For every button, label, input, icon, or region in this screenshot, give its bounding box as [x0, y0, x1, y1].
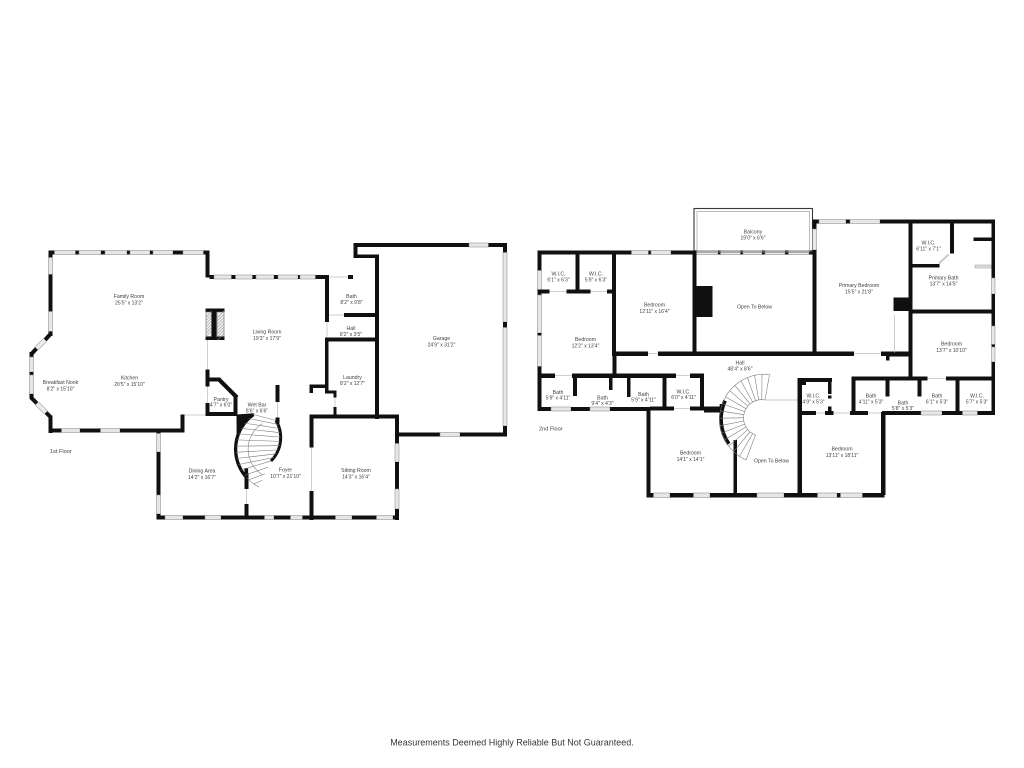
svg-text:4’7" x 6’0": 4’7" x 6’0"	[210, 402, 232, 408]
svg-text:Living Room: Living Room	[253, 330, 282, 336]
svg-text:14’2" x 16’7": 14’2" x 16’7"	[188, 475, 216, 481]
svg-text:9’4" x 4’3": 9’4" x 4’3"	[591, 401, 613, 407]
svg-text:15’5" x 21’8": 15’5" x 21’8"	[845, 289, 873, 295]
svg-text:4’11" x 5’3": 4’11" x 5’3"	[859, 399, 884, 405]
svg-text:14’3" x 16’4": 14’3" x 16’4"	[342, 474, 370, 480]
svg-text:5’7" x 5’3": 5’7" x 5’3"	[966, 399, 988, 405]
svg-text:25’5" x 13’2": 25’5" x 13’2"	[115, 300, 143, 306]
svg-text:6’11" x 7’1": 6’11" x 7’1"	[916, 246, 941, 252]
svg-text:Breakfast Nook: Breakfast Nook	[43, 380, 79, 386]
svg-text:Bedroom: Bedroom	[680, 451, 701, 457]
svg-text:8’2" x 9’8": 8’2" x 9’8"	[340, 300, 362, 306]
svg-text:10’7" x 21’10": 10’7" x 21’10"	[270, 474, 301, 480]
svg-text:Bedroom: Bedroom	[644, 303, 665, 309]
svg-text:13’7" x 14’5": 13’7" x 14’5"	[930, 281, 958, 287]
svg-text:5’9" x 4’11": 5’9" x 4’11"	[546, 395, 571, 401]
svg-text:Bedroom: Bedroom	[941, 342, 962, 348]
svg-text:4’9" x 5’3": 4’9" x 5’3"	[802, 399, 824, 405]
svg-text:Open To Below: Open To Below	[754, 459, 789, 465]
svg-text:Foyer: Foyer	[279, 468, 293, 474]
svg-text:24’9" x 31’2": 24’9" x 31’2"	[428, 342, 456, 348]
svg-text:Bedroom: Bedroom	[575, 337, 596, 343]
svg-text:Sitting Room: Sitting Room	[341, 468, 371, 474]
svg-text:Bedroom: Bedroom	[831, 447, 852, 453]
svg-text:Open To Below: Open To Below	[737, 305, 772, 311]
svg-text:8’2" x 12’7": 8’2" x 12’7"	[340, 381, 365, 387]
svg-text:12’11" x 16’4": 12’11" x 16’4"	[639, 309, 669, 315]
svg-text:5’9" x 4’11": 5’9" x 4’11"	[631, 397, 656, 403]
svg-text:19’0" x 6’6": 19’0" x 6’6"	[741, 235, 766, 241]
svg-text:Family Room: Family Room	[114, 294, 145, 300]
svg-text:Primary Bedroom: Primary Bedroom	[839, 283, 879, 289]
svg-text:2nd Floor: 2nd Floor	[539, 427, 563, 433]
svg-text:5’9" x 6’3": 5’9" x 6’3"	[585, 277, 607, 283]
svg-text:13’7" x 10’10": 13’7" x 10’10"	[936, 348, 967, 354]
svg-text:1st Floor: 1st Floor	[50, 449, 72, 455]
svg-text:14’1" x 14’1": 14’1" x 14’1"	[677, 457, 705, 463]
svg-text:6’1" x 6’3": 6’1" x 6’3"	[547, 277, 569, 283]
svg-text:6’1" x 5’3": 6’1" x 5’3"	[926, 399, 948, 405]
svg-text:8’2" x 15’10": 8’2" x 15’10"	[47, 386, 75, 392]
svg-text:Measurements Deemed Highly Rel: Measurements Deemed Highly Reliable But …	[390, 738, 634, 748]
svg-text:8’2" x 3’5": 8’2" x 3’5"	[340, 332, 362, 338]
svg-text:6’0" x 4’11": 6’0" x 4’11"	[671, 395, 696, 401]
svg-text:48’4" x 8’6": 48’4" x 8’6"	[728, 366, 753, 372]
svg-text:13’11" x 18’11": 13’11" x 18’11"	[826, 453, 859, 459]
svg-text:20’5" x 15’10": 20’5" x 15’10"	[114, 382, 145, 388]
svg-text:Garage: Garage	[433, 336, 450, 342]
svg-text:Kitchen: Kitchen	[121, 376, 138, 382]
svg-text:8’6" x 6’6": 8’6" x 6’6"	[246, 408, 268, 414]
svg-text:12’2" x 13’4": 12’2" x 13’4"	[572, 343, 600, 349]
svg-text:19’3" x 17’9": 19’3" x 17’9"	[253, 336, 281, 342]
svg-text:Dining Area: Dining Area	[189, 469, 216, 475]
svg-text:5’8" x 5’3": 5’8" x 5’3"	[892, 406, 914, 412]
